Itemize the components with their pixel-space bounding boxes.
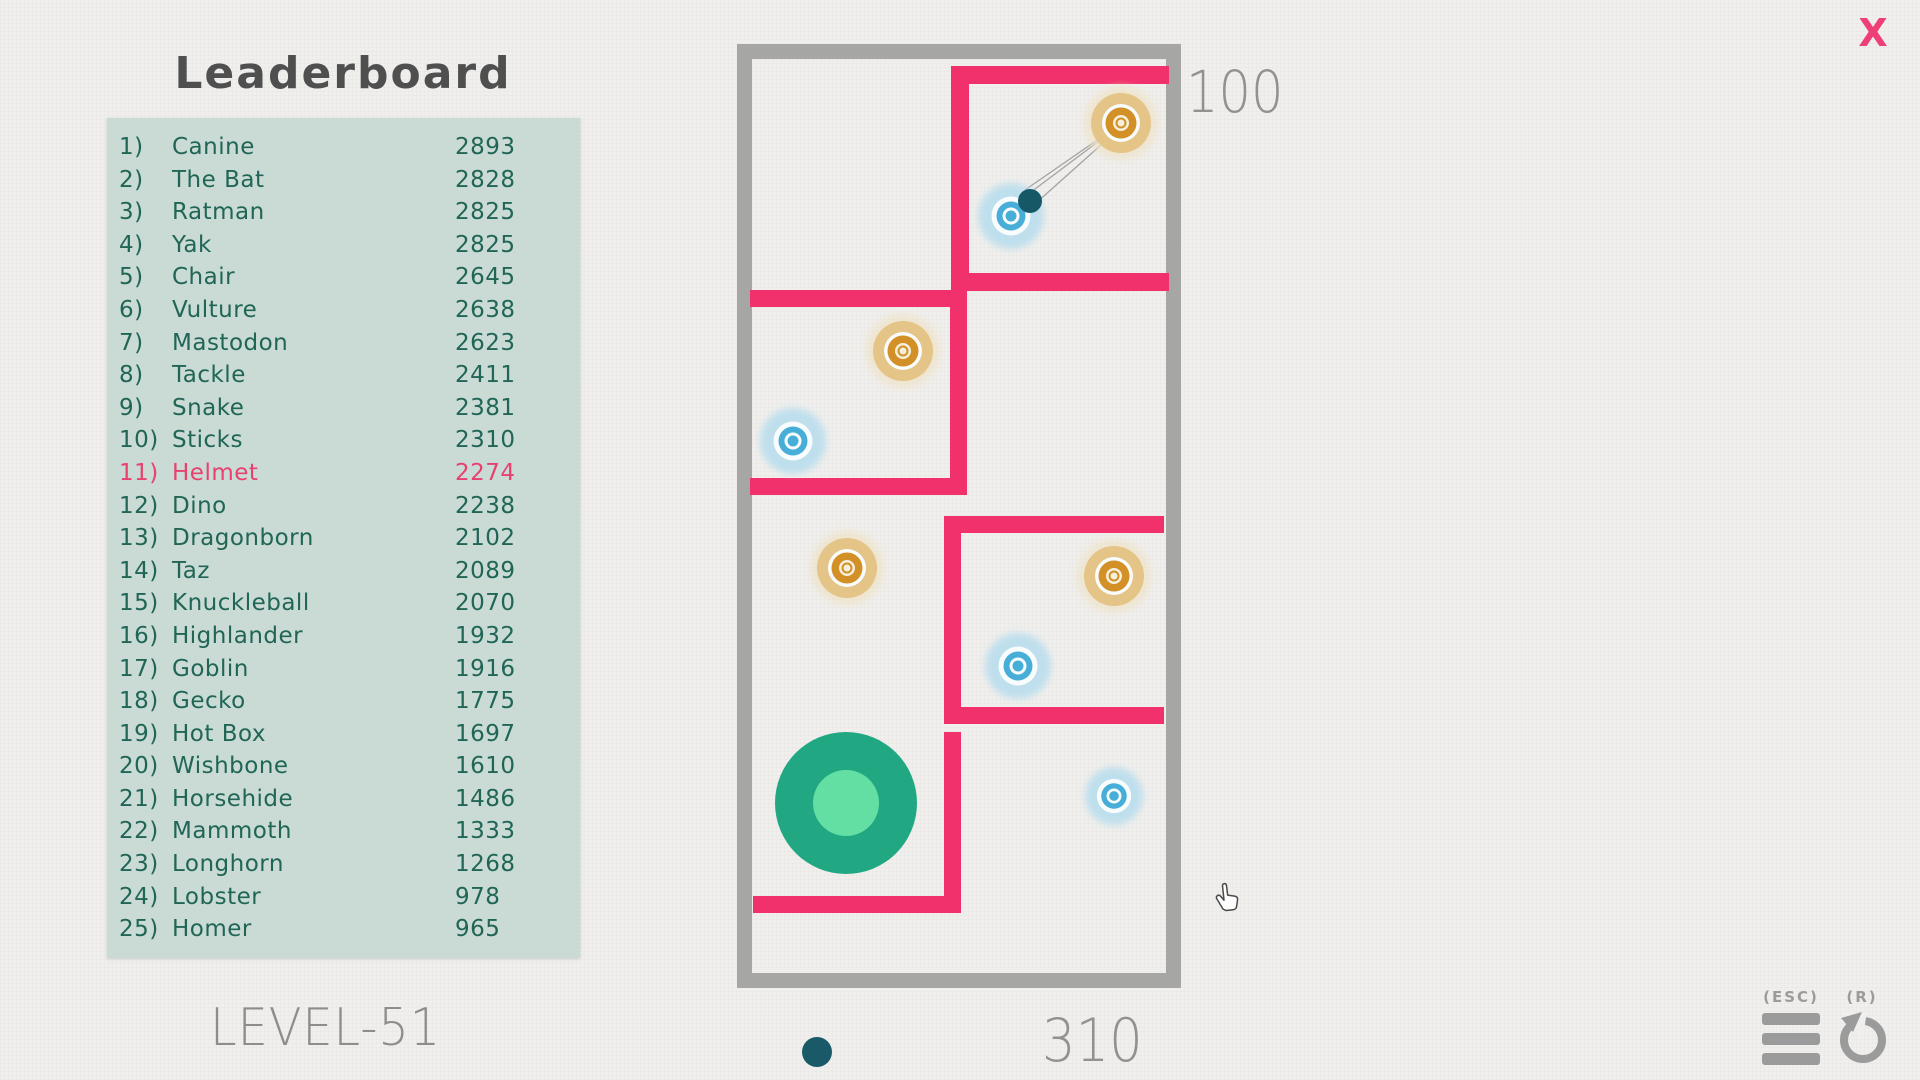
room1-top-wall xyxy=(951,66,1169,84)
room3-top-wall xyxy=(944,516,1164,533)
room1-bottom-wall xyxy=(951,273,1169,291)
room3-left-wall xyxy=(944,516,961,724)
lower-horizontal-wall xyxy=(753,896,961,913)
arena-border xyxy=(737,44,1181,59)
close-button[interactable]: X xyxy=(1850,10,1896,56)
arena-border xyxy=(737,973,1181,988)
room2-top-wall xyxy=(750,290,967,307)
player-ball[interactable] xyxy=(1018,189,1042,213)
score-top: 100 xyxy=(1186,58,1283,126)
orange-target-ring xyxy=(1113,115,1129,131)
restart-icon[interactable] xyxy=(1838,1012,1892,1066)
lower-vertical-wall xyxy=(944,732,961,913)
score-bottom: 310 xyxy=(1042,1006,1143,1076)
arena-border xyxy=(1166,44,1181,988)
menu-bar xyxy=(1762,1013,1820,1025)
room3-bottom-wall xyxy=(944,707,1164,724)
menu-bar xyxy=(1762,1053,1820,1065)
menu-icon[interactable] xyxy=(1762,1013,1822,1067)
orange-target-ring xyxy=(895,343,911,359)
esc-label: (ESC) xyxy=(1751,988,1831,1006)
orange-target-ring xyxy=(1106,568,1122,584)
menu-bar xyxy=(1762,1033,1820,1045)
hand-cursor xyxy=(1215,882,1239,911)
room1-left-wall xyxy=(951,66,969,291)
game-screen: Leaderboard 1)Canine28932)The Bat28283)R… xyxy=(0,0,1920,1080)
room2-right-wall xyxy=(950,290,967,495)
orange-target-ring xyxy=(839,560,855,576)
blue-target-center xyxy=(788,436,799,447)
blue-target-center xyxy=(1013,661,1024,672)
arena-border xyxy=(737,44,752,988)
blue-target-center xyxy=(1006,211,1017,222)
room2-bottom-wall xyxy=(750,478,967,495)
balls-left-dot xyxy=(802,1037,832,1067)
launcher-pad-center xyxy=(813,770,879,836)
restart-label: (R) xyxy=(1822,988,1902,1006)
game-canvas[interactable] xyxy=(0,0,1920,1080)
blue-target-center xyxy=(1109,791,1119,801)
